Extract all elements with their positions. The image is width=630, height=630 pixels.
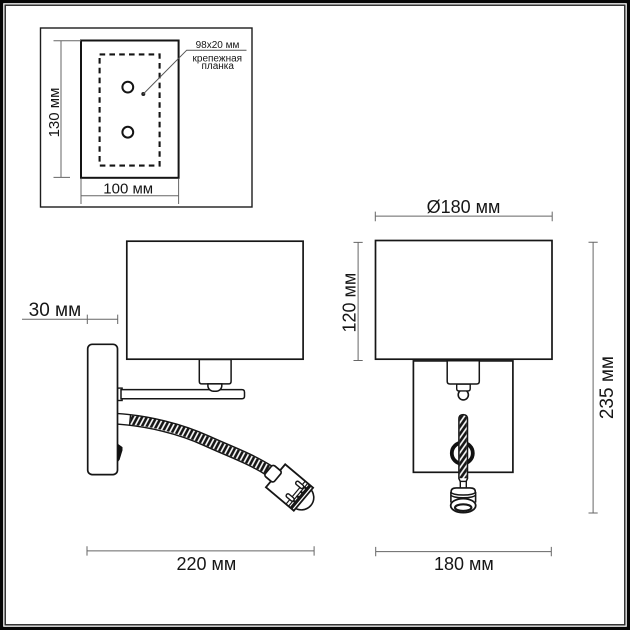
svg-text:220 мм: 220 мм <box>177 554 237 574</box>
svg-text:120 мм: 120 мм <box>340 273 360 333</box>
svg-text:180 мм: 180 мм <box>434 554 494 574</box>
svg-text:планка: планка <box>201 61 234 72</box>
svg-text:98x20 мм: 98x20 мм <box>196 40 240 51</box>
svg-text:235 мм: 235 мм <box>597 356 618 419</box>
svg-text:100 мм: 100 мм <box>103 181 153 198</box>
svg-text:130 мм: 130 мм <box>46 88 63 138</box>
svg-text:Ø180 мм: Ø180 мм <box>427 197 501 217</box>
svg-text:30 мм: 30 мм <box>29 300 82 321</box>
